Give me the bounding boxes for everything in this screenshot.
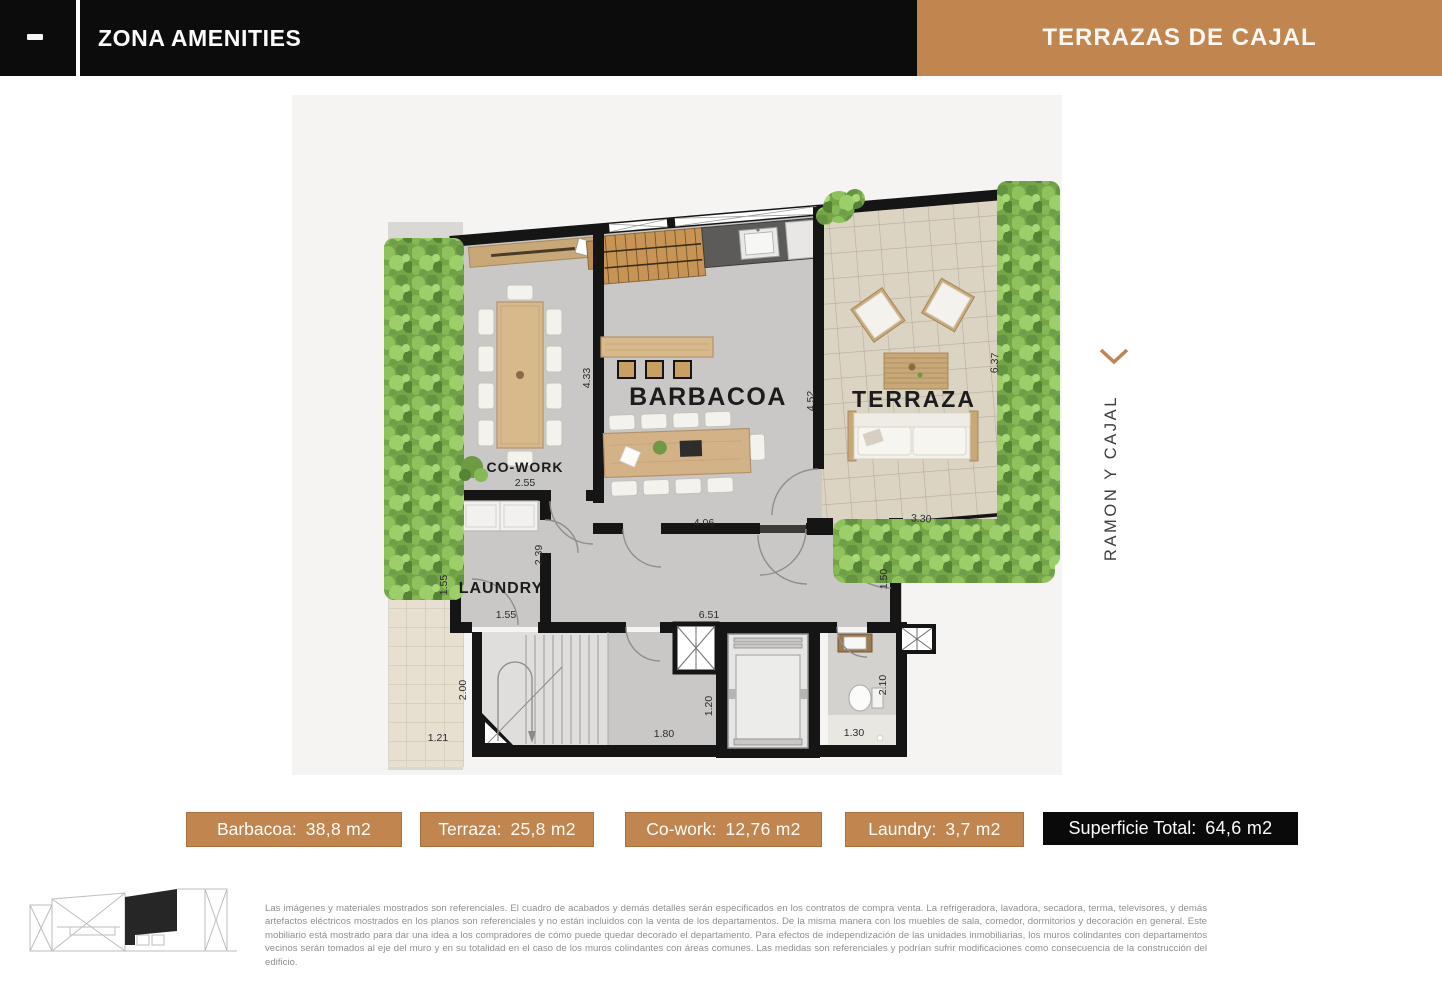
legal-disclaimer: Las imágenes y materiales mostrados son … <box>265 902 1207 970</box>
chip-value: 38,8 m2 <box>306 819 371 840</box>
dim-bath-right: 2.10 <box>877 675 889 696</box>
dim-cowork-width: 2.55 <box>515 477 536 489</box>
chip-label: Superficie Total: <box>1069 818 1197 839</box>
toilet-icon <box>849 685 871 711</box>
dim-barbacoa-bottom: 4.06 <box>694 517 715 529</box>
legend-chip-terraza: Terraza: 25,8 m2 <box>420 812 594 847</box>
stools <box>618 361 691 378</box>
dim-elevator-left: 1.20 <box>703 696 715 717</box>
legend-chip-total: Superficie Total: 64,6 m2 <box>1043 812 1298 845</box>
coffee-table <box>884 353 948 389</box>
legend-chip-laundry: Laundry: 3,7 m2 <box>845 812 1024 847</box>
chip-label: Barbacoa: <box>217 819 297 840</box>
chip-value: 25,8 m2 <box>510 819 575 840</box>
dim-corridor-width: 6.51 <box>699 609 720 621</box>
dim-terraza-bottom: 3.30 <box>911 512 932 525</box>
room-label-laundry: LAUNDRY <box>459 580 544 597</box>
chip-label: Laundry: <box>868 819 936 840</box>
page-title: ZONA AMENITIES <box>98 25 301 52</box>
brand-logo <box>25 883 240 968</box>
brochure-page: ZONA AMENITIES TERRAZAS DE CAJAL <box>0 0 1442 1000</box>
room-label-barbacoa: BARBACOA <box>629 383 787 411</box>
chip-label: Co-work: <box>646 819 716 840</box>
room-label-terraza: TERRAZA <box>852 386 976 412</box>
room-label-cowork: CO-WORK <box>487 459 564 475</box>
dim-terraza-right: 6.37 <box>988 352 1001 373</box>
header-project-bar: TERRAZAS DE CAJAL <box>917 0 1442 76</box>
dim-barbacoa-left: 4.33 <box>581 368 593 389</box>
dim-laundry-bottom: 1.55 <box>496 609 517 621</box>
legend-chip-barbacoa: Barbacoa: 38,8 m2 <box>186 812 402 847</box>
dim-stairs-bottom: 1.80 <box>654 728 675 740</box>
chip-value: 3,7 m2 <box>945 819 1000 840</box>
chip-value: 12,76 m2 <box>725 819 800 840</box>
dim-laundry-height: 2.39 <box>533 545 545 566</box>
legend-chip-cowork: Co-work: 12,76 m2 <box>625 812 822 847</box>
dim-patio-bottom: 1.21 <box>428 732 449 744</box>
project-title: TERRAZAS DE CAJAL <box>1042 24 1316 52</box>
floorplan-svg: BARBACOA TERRAZA CO-WORK LAUNDRY 4.33 4.… <box>292 95 1062 775</box>
elevator <box>716 622 820 758</box>
dim-laundry-left: 1.55 <box>438 575 450 596</box>
grill-icon <box>680 440 703 457</box>
street-label: RAMON Y CAJAL <box>1102 378 1124 578</box>
dim-hall-right: 1.50 <box>878 569 890 590</box>
dim-barbacoa-right: 4.52 <box>805 391 817 412</box>
chip-value: 64,6 m2 <box>1205 818 1272 839</box>
dim-bath-bottom: 1.30 <box>844 727 865 739</box>
menu-dash-button[interactable] <box>0 0 76 76</box>
sofa <box>848 411 978 461</box>
washer-dryer <box>462 501 538 531</box>
chevron-down-icon <box>1098 347 1130 367</box>
dim-stairs-left: 2.00 <box>457 680 469 701</box>
floorplan-card: BARBACOA TERRAZA CO-WORK LAUNDRY 4.33 4.… <box>292 95 1062 775</box>
header-left-bar: ZONA AMENITIES <box>80 0 917 76</box>
chip-label: Terraza: <box>438 819 501 840</box>
building-mass <box>125 889 177 945</box>
dash-icon <box>27 34 43 40</box>
